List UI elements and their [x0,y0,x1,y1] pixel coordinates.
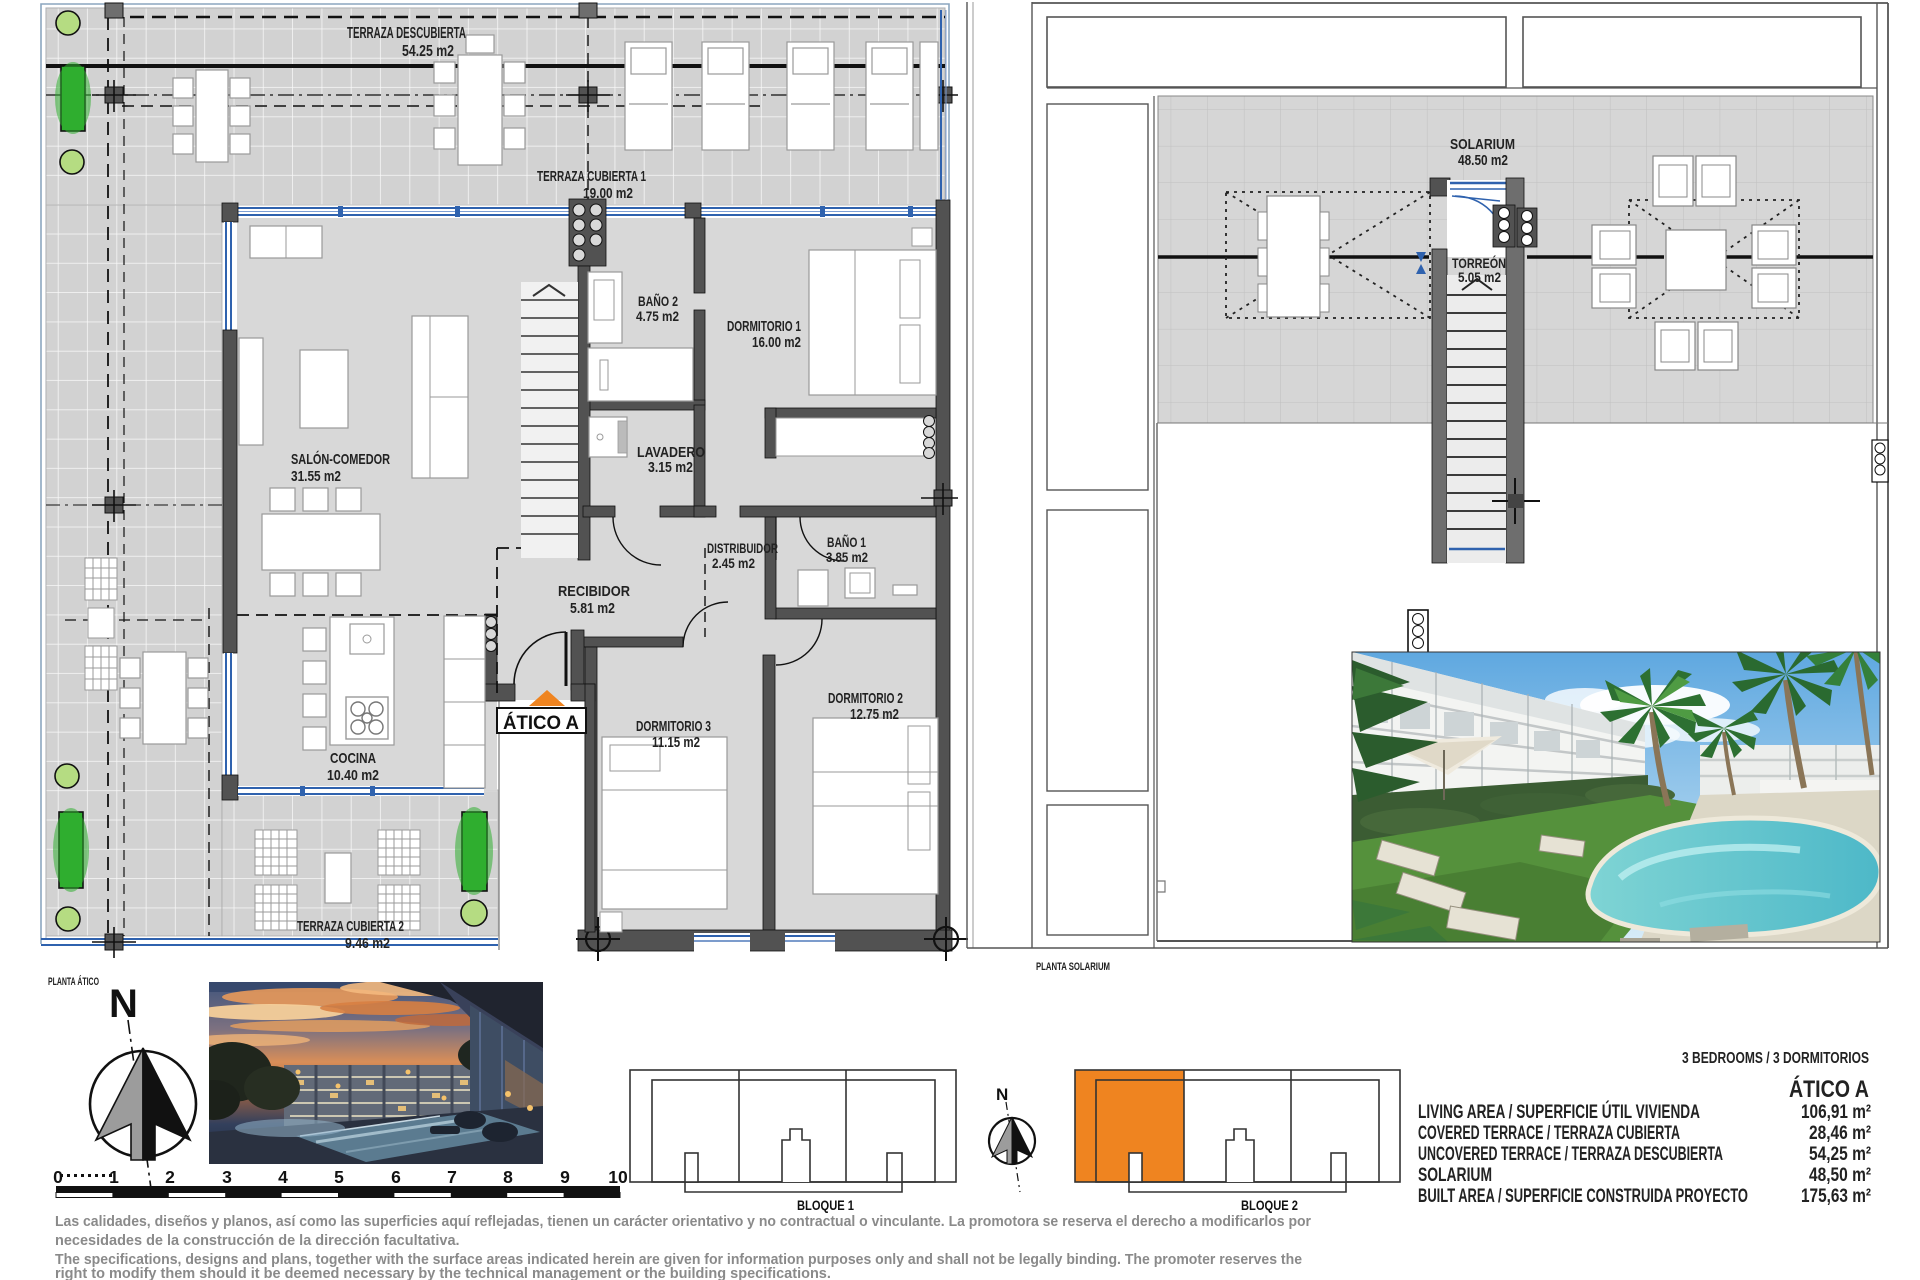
svg-text:TERRAZA DESCUBIERTA: TERRAZA DESCUBIERTA [347,25,466,42]
svg-text:N: N [109,982,138,1026]
svg-text:ÁTICO A: ÁTICO A [503,712,579,734]
svg-text:RECIBIDOR: RECIBIDOR [558,583,630,600]
svg-text:10: 10 [608,1167,628,1187]
svg-text:COVERED TERRACE / TERRAZA CUBI: COVERED TERRACE / TERRAZA CUBIERTA [1418,1123,1680,1144]
svg-text:10.40 m2: 10.40 m2 [327,767,379,784]
svg-text:BLOQUE 1: BLOQUE 1 [797,1197,854,1213]
svg-text:TERRAZA CUBIERTA 2: TERRAZA CUBIERTA 2 [297,918,404,935]
svg-text:BLOQUE 2: BLOQUE 2 [1241,1197,1298,1213]
svg-text:SALÓN-COMEDOR: SALÓN-COMEDOR [291,450,390,468]
svg-text:7: 7 [447,1167,457,1187]
svg-text:106,91 m²: 106,91 m² [1801,1102,1871,1123]
svg-text:necesidades de la construcción: necesidades de la construcción de la dir… [55,1233,460,1249]
svg-text:Las calidades, diseños y plano: Las calidades, diseños y planos, así com… [55,1214,1311,1230]
svg-text:BUILT AREA / SUPERFICIE CONSTR: BUILT AREA / SUPERFICIE CONSTRUIDA PROYE… [1418,1186,1748,1207]
svg-text:UNCOVERED TERRACE / TERRAZA DE: UNCOVERED TERRACE / TERRAZA DESCUBIERTA [1418,1144,1723,1165]
svg-text:8: 8 [503,1167,513,1187]
svg-text:4.75 m2: 4.75 m2 [636,308,679,324]
svg-text:175,63 m²: 175,63 m² [1801,1186,1871,1207]
svg-text:BAÑO 1: BAÑO 1 [827,533,866,550]
svg-text:28,46 m²: 28,46 m² [1809,1123,1871,1144]
svg-text:6: 6 [391,1167,401,1187]
svg-text:DISTRIBUIDOR: DISTRIBUIDOR [707,540,778,556]
svg-text:PLANTA SOLARIUM: PLANTA SOLARIUM [1036,961,1110,973]
svg-text:3.15 m2: 3.15 m2 [648,459,693,476]
svg-text:3 BEDROOMS / 3 DORMITORIOS: 3 BEDROOMS / 3 DORMITORIOS [1682,1050,1869,1067]
svg-text:31.55 m2: 31.55 m2 [291,468,341,485]
svg-text:COCINA: COCINA [330,750,376,767]
svg-text:2: 2 [165,1167,175,1187]
svg-text:5: 5 [334,1167,344,1187]
svg-text:4: 4 [278,1167,288,1187]
svg-text:ÁTICO A: ÁTICO A [1789,1075,1869,1103]
svg-text:19.00 m2: 19.00 m2 [583,185,633,202]
svg-text:DORMITORIO 2: DORMITORIO 2 [828,690,903,707]
svg-text:TERRAZA CUBIERTA 1: TERRAZA CUBIERTA 1 [537,168,646,185]
svg-text:3.85 m2: 3.85 m2 [826,549,868,565]
svg-text:3: 3 [222,1167,232,1187]
svg-text:11.15 m2: 11.15 m2 [652,734,700,751]
svg-text:12.75 m2: 12.75 m2 [850,706,899,723]
svg-text:48.50 m2: 48.50 m2 [1458,152,1508,169]
svg-text:DORMITORIO 1: DORMITORIO 1 [727,318,801,335]
svg-text:54.25 m2: 54.25 m2 [402,43,454,60]
svg-text:9: 9 [560,1167,570,1187]
svg-text:SOLARIUM: SOLARIUM [1450,136,1515,153]
svg-text:9.46 m2: 9.46 m2 [345,935,390,952]
svg-text:5.81 m2: 5.81 m2 [570,600,615,617]
svg-text:2.45 m2: 2.45 m2 [712,555,755,571]
svg-text:DORMITORIO 3: DORMITORIO 3 [636,718,711,735]
svg-text:54,25 m²: 54,25 m² [1809,1144,1871,1165]
svg-text:PLANTA ÁTICO: PLANTA ÁTICO [48,975,99,988]
svg-text:48,50 m²: 48,50 m² [1809,1165,1871,1186]
svg-text:16.00 m2: 16.00 m2 [752,334,801,351]
svg-text:5.05 m2: 5.05 m2 [1458,269,1501,285]
svg-text:SOLARIUM: SOLARIUM [1418,1165,1492,1186]
svg-text:right to modify them should it: right to modify them should it be deemed… [55,1266,831,1280]
svg-text:BAÑO 2: BAÑO 2 [638,292,678,309]
svg-text:LIVING AREA / SUPERFICIE ÚTIL: LIVING AREA / SUPERFICIE ÚTIL VIVIENDA [1418,1101,1700,1123]
svg-text:N: N [996,1085,1008,1104]
